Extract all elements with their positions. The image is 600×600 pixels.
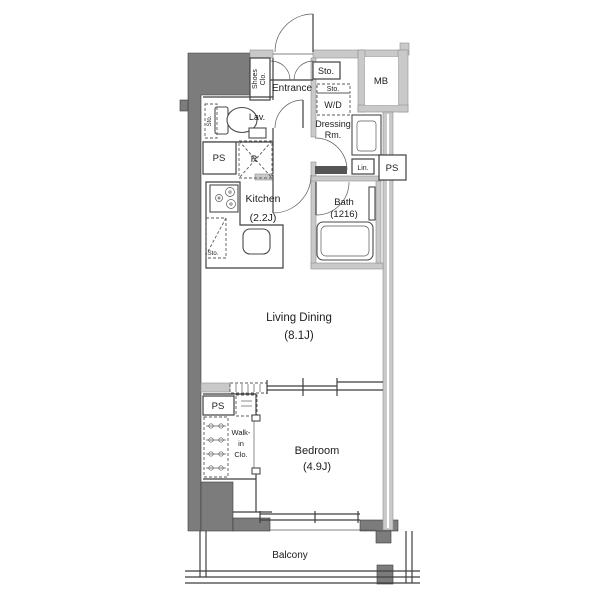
floorplan-drawing: Shoes Clo. Entrance Sto. MB Sto. W/D Dre… [0,0,600,600]
bathtub-icon [317,222,373,260]
floorplan: Shoes Clo. Entrance Sto. MB Sto. W/D Dre… [0,0,600,600]
living-dining-size-label: (8.1J) [284,330,314,342]
pipe-space-top-label: PS [213,153,226,164]
bath-size-label: (1216) [330,209,357,220]
kitchen-label: Kitchen [245,193,280,205]
bath-label: Bath [334,197,354,208]
dressing-door-leaf [315,166,347,174]
refrigerator-label: R [251,154,258,164]
entrance-door-arc [275,14,313,52]
kitchen-storage-label: Sto. [208,251,219,257]
shelf-box [236,395,257,416]
living-dining-label: Living Dining [266,312,332,324]
walk-in-closet-label: Clo. [234,450,247,459]
lavatory-storage-label: Sto. [207,115,213,126]
meter-box-label: MB [374,76,388,87]
kitchen-size-label: (2.2J) [250,212,277,224]
entrance-storage-label: Sto. [318,66,334,76]
sliding-partition [230,378,383,396]
bath-counter [369,187,375,220]
bedroom-size-label: (4.9J) [303,461,331,473]
entrance-label: Entrance [272,83,312,94]
bedroom-zone [233,479,360,523]
laundry-storage-label: Sto. [327,86,340,93]
pipe-space-bottom-label: PS [212,401,225,412]
lav-counter [249,128,266,138]
bedroom-label: Bedroom [295,445,340,457]
sink-icon [243,229,270,254]
walk-in-closet-label: in [238,439,244,448]
lavatory-label: Lav. [249,112,265,122]
door-jamb [252,415,260,421]
lav-door-arc [275,100,303,128]
shoes-closet-label: Clo. [260,73,267,86]
balcony-label: Balcony [272,550,308,561]
washer-dryer-label: W/D [324,100,342,110]
pipe-space-right-label: PS [386,163,399,174]
closet-door-arc [271,61,290,80]
door-jamb [252,468,260,474]
closet-door-arc [294,61,313,80]
dressing-door-arc [315,138,347,170]
bath-zone [316,182,375,260]
dressing-room-label: Dressing [315,119,351,129]
dressing-room-label: Rm. [325,130,342,140]
shoes-closet-label: Shoes [252,69,259,89]
walk-in-closet-label: Walk- [232,428,251,437]
linen-label: Lin. [357,165,368,172]
